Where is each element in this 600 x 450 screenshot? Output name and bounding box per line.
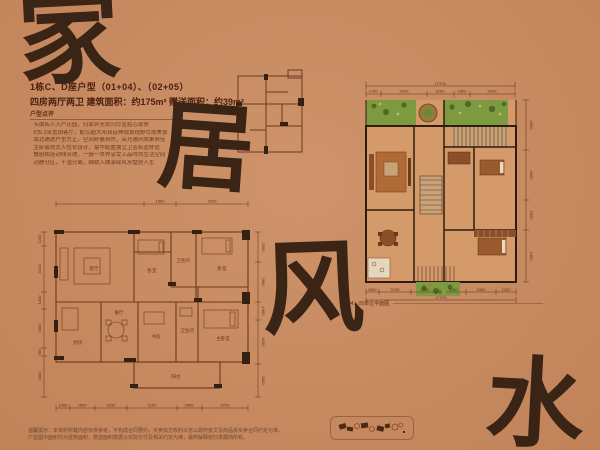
dim-label: 1400	[59, 403, 69, 408]
dim-label: 2400	[261, 376, 266, 386]
dim-label: 1700	[369, 89, 379, 94]
main-floor-plan: 17375 1700 5240 3100 1800 5100	[356, 80, 562, 304]
main-plan-caption: 04、05单位平面图	[348, 300, 543, 307]
dim-label: 3050	[449, 287, 459, 292]
left-plan-furniture	[60, 238, 238, 341]
site-sketch	[331, 417, 413, 439]
left-plan-walls	[54, 230, 250, 388]
calligraphy-jia: 家	[15, 0, 122, 93]
dim-label: 5240	[400, 89, 410, 94]
dim-label: 3300	[421, 287, 431, 292]
left-plan-dim-labels-bottom: 1400 2600 3290 5100 2600 4700	[59, 403, 231, 408]
dim-label: 5100	[488, 89, 498, 94]
room-label: 主卧室	[216, 335, 230, 342]
site-plan-thumbnail	[330, 416, 414, 440]
dim-label: 5100	[148, 403, 158, 408]
dim-label: 3400	[37, 371, 42, 381]
dim-label: 3100	[436, 89, 446, 94]
main-plan-dims-right: 4300 4400 1600 2400	[523, 100, 534, 282]
calligraphy-shui: 水	[484, 354, 587, 450]
dim-label: 1400	[37, 295, 42, 305]
dim-label: 1500	[368, 287, 378, 292]
dim-label: 3290	[107, 403, 117, 408]
main-plan-dim-labels-top: 1700 5240 3100 1800 5100	[369, 89, 498, 94]
dim-label: 2600	[185, 403, 195, 408]
disclaimer-line: 户型图中面积均为建筑面积，赠送面积数据以实际交付及相关约定为准，最终解释权归发展…	[28, 435, 328, 442]
dim-label: 650	[37, 348, 42, 355]
dim-label: 2400	[529, 252, 534, 262]
brochure-page: 家 居 风 水 1栋C、D座户型（01+04）、（02+05） 四房两厅两卫 建…	[0, 0, 600, 450]
disclaimer-line: 温馨提示：本资料所载内容仅供参考，不构成合同要约，买卖双方权利义务以政府批文及商…	[28, 428, 328, 435]
room-label: 餐厅	[114, 309, 124, 316]
room-label: 卫生间	[180, 327, 194, 334]
room-label: 卧室	[217, 265, 227, 272]
dim-label: 4400	[529, 171, 534, 181]
dim-label: 1800	[458, 89, 468, 94]
calligraphy-ju: 居	[155, 97, 257, 199]
left-floor-plan: 1500 4200	[16, 192, 266, 424]
left-plan-dims-left: 1200 4100 1400 3400 650 3400	[37, 232, 47, 397]
dim-label: 2600	[78, 403, 88, 408]
review-heading: 户型点评	[30, 109, 176, 120]
room-label: 阳台	[171, 373, 181, 380]
dim-label: 1200	[37, 234, 42, 244]
dim-label: 3700	[391, 287, 401, 292]
dim-label: 3400	[37, 323, 42, 333]
dim-label: 4100	[37, 264, 42, 274]
terrace-hatch	[452, 126, 508, 147]
dim-label: 1600	[529, 211, 534, 221]
room-label: 客厅	[89, 265, 99, 272]
dim-label: 4700	[221, 403, 231, 408]
dim-label: 17375	[434, 81, 446, 86]
disclaimer: 温馨提示：本资料所载内容仅供参考，不构成合同要约，买卖双方权利义务以政府批文及商…	[28, 428, 328, 441]
dim-label: 4300	[529, 121, 534, 131]
room-label: 厨房	[73, 339, 83, 346]
dim-label: 3450	[477, 287, 487, 292]
room-label: 卫生间	[176, 257, 190, 264]
room-label: 卧室	[147, 267, 157, 274]
calligraphy-feng: 风	[260, 236, 365, 341]
dim-label: 2320	[502, 287, 512, 292]
room-label: 书房	[151, 333, 161, 340]
